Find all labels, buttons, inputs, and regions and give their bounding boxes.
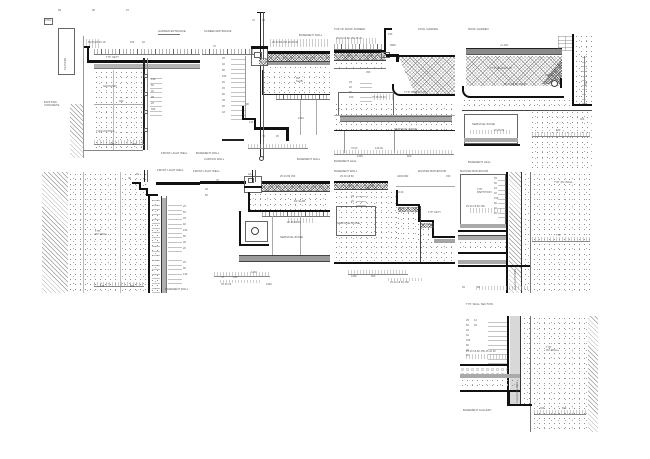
- annotation-label: TYP. SETT: [428, 211, 441, 214]
- annotation-label: 25 40 80 150: [280, 175, 295, 178]
- annotation-label: SERVICE ZONE: [472, 123, 495, 127]
- annotation-label: ROOF GARDEN: [468, 28, 489, 31]
- annotation-label: 45: [474, 324, 477, 327]
- step-membrane-line: [396, 204, 420, 206]
- coping-line: [466, 54, 562, 55]
- annotation-label: 150: [151, 78, 155, 81]
- annotation-label: 45: [276, 135, 279, 138]
- annotation-label: BASEMENT WALL: [297, 158, 320, 161]
- annotation-label: PLANTER: [64, 58, 67, 70]
- annotation-label: 18: [222, 111, 225, 114]
- annotation-label: 50: [183, 211, 186, 214]
- dimension-line: [534, 414, 586, 415]
- annotation-label: 600: [371, 275, 375, 278]
- ceiling-band: [239, 256, 330, 261]
- annotation-label: 80: [151, 84, 154, 87]
- annotation-label: 120: [183, 273, 187, 276]
- leader-riser: [245, 56, 246, 120]
- mullion-line: [255, 170, 256, 182]
- annotation-label: 80: [494, 202, 497, 205]
- pipe-flag: [386, 28, 392, 30]
- annotation-label: 40: [151, 90, 154, 93]
- receiver-head: [251, 46, 268, 49]
- membrane-upstand: [560, 78, 562, 88]
- annotation-label: GROUND: [103, 85, 117, 89]
- annotation-label: +0.00: [397, 191, 404, 194]
- annotation-label: FRONT LIGHT WELL: [157, 169, 184, 172]
- annotation-label: 600: [556, 129, 560, 132]
- annotation-label: 18: [466, 329, 469, 332]
- concrete-slab-hatch: [334, 240, 455, 262]
- dimension-line: [94, 54, 200, 55]
- annotation-label: 40: [183, 223, 186, 226]
- ceiling-line: [458, 265, 530, 267]
- annotation-label: EXISTING CONCRETE: [44, 101, 59, 107]
- earth-hatch: [588, 316, 598, 432]
- annotation-label: 50 80 25 40 18: [88, 41, 105, 44]
- membrane-curve: [462, 86, 564, 98]
- concrete-slab-hatch: [462, 98, 572, 110]
- wall-line: [530, 316, 531, 432]
- annotation-label: 25: [151, 96, 154, 99]
- annotation-label: 70 45 20 40: [372, 96, 386, 99]
- partition-line: [316, 100, 317, 135]
- annotation-label: 70: [213, 45, 216, 48]
- wall-line: [520, 316, 521, 406]
- floor-slab-hatch: [458, 240, 506, 252]
- lining-line: [166, 196, 167, 293]
- annotation-label: 25: [183, 205, 186, 208]
- annotation-label: POOL GARDEN: [418, 28, 438, 31]
- annotation-label: TYP. SETT: [106, 56, 119, 59]
- annotation-label: 1200: [351, 275, 357, 278]
- annotation-label: TYP. RC WALL: [546, 346, 558, 352]
- annotation-label: 240: [233, 276, 237, 279]
- soffit-line: [276, 99, 330, 100]
- annotation-label: 12: [474, 319, 477, 322]
- annotation-label: 260: [132, 143, 136, 146]
- slab-soffit-line: [334, 262, 455, 264]
- fixing-plate: [144, 92, 148, 96]
- dimension-line: [202, 54, 254, 55]
- annotation-label: RWP: [390, 44, 396, 47]
- annotation-label: 90: [477, 286, 480, 289]
- annotation-label: 18: [183, 217, 186, 220]
- annotation-label: 20: [494, 212, 497, 215]
- annotation-label: BASEMENT WALL: [196, 152, 219, 155]
- annotation-label: 25: [222, 57, 225, 60]
- leader-lines: [168, 260, 182, 284]
- annotation-label: 40: [349, 86, 352, 89]
- annotation-label: BASEMENT GALLERY: [463, 409, 492, 412]
- annotation-label: 1200: [251, 271, 257, 274]
- annotation-label: 600: [562, 407, 566, 410]
- hanger-line: [272, 216, 273, 256]
- annotation-label: AA: [248, 173, 251, 176]
- wall-line: [521, 172, 522, 293]
- wall-line: [143, 58, 145, 150]
- annotation-label: 20: [151, 102, 154, 105]
- fixing-plate: [144, 74, 148, 78]
- annotation-label: 25: [466, 319, 469, 322]
- title-underline: [158, 34, 180, 35]
- concrete-joint-line: [83, 172, 84, 293]
- concrete-mass-hatch: [532, 172, 592, 293]
- ceiling-band: [464, 138, 518, 142]
- dimension-ticks: [476, 286, 530, 290]
- annotation-label: 150: [446, 175, 450, 178]
- annotation-label: CURTAIN WALL: [204, 158, 224, 161]
- tread-hatch: [398, 207, 418, 212]
- beam-line: [340, 121, 452, 122]
- annotation-label: 25 40 80 150 20 45 90: [272, 41, 298, 44]
- annotation-label: 150: [349, 96, 353, 99]
- rainwater-pipe-line: [384, 28, 386, 54]
- annotation-label: 20: [351, 200, 354, 203]
- concrete-joint-line: [113, 70, 114, 150]
- ground-line: [396, 186, 455, 187]
- annotation-label: 90: [246, 103, 249, 106]
- annotation-label: RC SLAB: [294, 200, 305, 203]
- annotation-label: +2.150: [500, 44, 508, 47]
- annotation-label: 300: [580, 118, 584, 121]
- annotation-label: 70: [216, 179, 219, 182]
- concrete-joint-line: [94, 104, 143, 105]
- insulation-hatch: [262, 184, 330, 191]
- annotation-label: 45: [462, 286, 465, 289]
- annotation-label: 05: [58, 9, 61, 12]
- slab-edge-line: [248, 192, 250, 211]
- annotation-label: 06: [92, 9, 95, 12]
- annotation-label: 140: [249, 121, 253, 124]
- annotation-label: TILE PAVING: [96, 130, 115, 134]
- annotation-label: 70: [128, 177, 131, 180]
- annotation-label: CLEAR OPENING: [514, 269, 517, 290]
- wall-layer-lines: [152, 198, 160, 293]
- mullion-line: [144, 170, 145, 182]
- mullion-line: [147, 170, 148, 182]
- annotation-label: 2400: [266, 283, 272, 286]
- annotation-label: TYP. PARTITION: [477, 188, 492, 194]
- annotation-label: MASTER BATHROOM: [460, 170, 488, 173]
- annotation-label: TYP. BUILD-UP: [490, 67, 512, 71]
- annotation-label: 80: [349, 91, 352, 94]
- annotation-label: TYP. RC WALL: [95, 230, 107, 236]
- ceiling-line: [239, 261, 330, 262]
- annotation-label: BASEMENT WALL: [334, 170, 357, 173]
- floor-membrane-line: [460, 364, 508, 366]
- annotation-label: 70: [252, 19, 255, 22]
- annotation-label: 18: [494, 187, 497, 190]
- concrete-slab-hatch: [248, 192, 330, 211]
- annotation-label: 20: [222, 81, 225, 84]
- section-marker: [259, 156, 264, 161]
- annotation-label: 70: [221, 276, 224, 279]
- annotation-label: BASEMENT HALL: [468, 161, 491, 164]
- annotation-label: 40: [466, 334, 469, 337]
- wall-face-line: [572, 34, 574, 106]
- annotation-label: 185: [100, 285, 104, 288]
- annotation-label: BASEMENT WALL: [165, 288, 188, 291]
- step-line: [508, 404, 532, 406]
- annotation-label: 150: [365, 187, 369, 190]
- dimension-line: [248, 148, 308, 149]
- annotation-label: 30: [183, 241, 186, 244]
- wall-core-hatch: [522, 316, 530, 406]
- band-line: [334, 68, 386, 69]
- annotation-label: 150: [222, 75, 226, 78]
- dimension-line: [348, 274, 408, 275]
- screed-hatch: [334, 61, 386, 68]
- annotation-label: MASTER BATHROOM: [418, 170, 446, 173]
- annotation-label: 300: [540, 407, 544, 410]
- annotation-label: TOP OF ROOF SCREED: [334, 28, 365, 31]
- light-fitting: [251, 227, 259, 235]
- bulkhead-line: [239, 244, 269, 246]
- annotation-label: 45: [351, 195, 354, 198]
- fixing-plate: [144, 110, 148, 114]
- wall-boundary-line: [83, 36, 84, 158]
- annotation-label: 80: [183, 235, 186, 238]
- earth-hatch: [70, 104, 83, 158]
- annotation-label: 40: [222, 63, 225, 66]
- annotation-label: 60: [222, 105, 225, 108]
- annotation-label: 450: [585, 82, 588, 86]
- annotation-label: 45: [136, 173, 139, 176]
- dimension-line: [334, 154, 454, 155]
- ceiling-line: [464, 144, 520, 146]
- mullion-line: [252, 170, 253, 182]
- annotation-label: 25 40 18 80 150: [466, 205, 485, 208]
- annotation-label: 25 40 18 80 150 45 20: [336, 37, 362, 40]
- annotation-label: 25 40 18 80 150 45 20 90: [466, 350, 496, 353]
- annotation-label: 45: [183, 261, 186, 264]
- annotation-label: 90: [183, 267, 186, 270]
- annotation-label: BASEMENT HALL: [334, 160, 357, 163]
- floor-band: [460, 224, 506, 228]
- annotation-label: SERVICE ZONE: [394, 128, 417, 132]
- wall-core-hatch: [523, 172, 530, 293]
- annotation-label: 07: [126, 9, 129, 12]
- concrete-joint-line: [120, 172, 121, 293]
- annotation-label: 150: [494, 197, 498, 200]
- annotation-label: 600: [407, 155, 411, 158]
- mass-top-line: [530, 110, 592, 111]
- annotation-label: 25 40 18: [221, 283, 231, 286]
- annotation-label: 2120: [298, 117, 304, 120]
- annotation-label: 70: [262, 135, 265, 138]
- slab-soffit-line: [460, 390, 520, 392]
- annotation-label: 140.00: [375, 147, 383, 150]
- annotation-label: 70.00: [351, 147, 358, 150]
- annotation-label: 185: [110, 143, 114, 146]
- annotation-label: 25: [205, 188, 208, 191]
- annotation-label: 450: [366, 71, 370, 74]
- drainage-gravel-hatch: [460, 367, 508, 374]
- annotation-label: 25 40 18 80 150: [390, 281, 409, 284]
- annotation-label: FRONT LIGHT WELL: [161, 152, 188, 155]
- annotation-label: SERVICE ZONE: [280, 236, 303, 240]
- annotation-label: 25 40 18 80: [340, 175, 354, 178]
- annotation-label: CTRL: [45, 20, 51, 23]
- annotation-label: 150: [466, 339, 470, 342]
- leader-lines: [470, 208, 502, 213]
- membrane-line: [398, 55, 455, 57]
- wall-face-line: [506, 172, 508, 293]
- tread-hatch: [420, 223, 434, 228]
- annotation-label: 45: [222, 87, 225, 90]
- slab-soffit-line: [458, 252, 506, 254]
- annotation-label: 80: [466, 344, 469, 347]
- leader-lines: [356, 194, 366, 206]
- annotation-label: 1200: [357, 155, 363, 158]
- annotation-label: 25: [494, 177, 497, 180]
- concrete-slab-hatch: [94, 70, 143, 150]
- annotation-label: 300: [119, 100, 123, 103]
- wall-step-line: [572, 104, 592, 106]
- dimension-line: [532, 241, 590, 242]
- annotation-label: 25 40 18 80 150 45: [504, 83, 526, 86]
- annotation-label: RC SLAB: [296, 77, 303, 83]
- insulation-hatch: [259, 58, 268, 66]
- ledge-line: [222, 139, 244, 141]
- annotation-label: 50: [466, 324, 469, 327]
- junction-line: [244, 186, 262, 188]
- annotation-label: 35: [222, 99, 225, 102]
- roof-edge-upstand: [87, 47, 89, 61]
- annotation-label: SCREEN ENTRANCE: [204, 30, 231, 33]
- floor-line: [458, 230, 508, 232]
- annotation-label: SERVICE ZONE: [337, 222, 360, 226]
- annotation-label: GARDEN ENTRANCE: [158, 30, 186, 33]
- bulkhead-line: [239, 211, 241, 246]
- concrete-wall-hatch: [68, 172, 148, 293]
- masonry-hatch: [558, 36, 572, 51]
- dimension-line: [532, 136, 590, 137]
- fixing-plate: [144, 128, 148, 132]
- annotation-label: 40: [494, 192, 497, 195]
- annotation-label: 40: [142, 41, 145, 44]
- wall-line: [147, 58, 148, 150]
- annotation-label: CLEAR OPENING: [516, 382, 519, 403]
- coping-membrane-line: [200, 181, 246, 184]
- annotation-label: BASEMENT WALL: [299, 34, 322, 37]
- annotation-label: 260: [130, 285, 134, 288]
- earth-hatch: [42, 172, 68, 293]
- leader-lines: [466, 354, 508, 359]
- annotation-label: 25: [349, 81, 352, 84]
- annotation-label: TYP: [556, 234, 561, 237]
- dimension-line: [584, 56, 585, 104]
- annotation-label: 20 45 90 35: [287, 221, 301, 224]
- drawing-sheet: 050607CTRLPLANTERGARDEN ENTRANCE50 80 25…: [0, 0, 650, 459]
- insulation-hatch: [334, 53, 386, 60]
- wall-line: [530, 172, 531, 293]
- floor-slab-hatch: [460, 378, 520, 390]
- step-membrane-line: [432, 236, 455, 238]
- annotation-label: 20: [183, 247, 186, 250]
- annotation-label: 50: [205, 194, 208, 197]
- annotation-label: TYP. BUILD-UP: [404, 91, 426, 95]
- annotation-label: 80: [222, 69, 225, 72]
- annotation-label: 20: [466, 354, 469, 357]
- base-line: [83, 150, 143, 151]
- annotation-label: 50: [494, 182, 497, 185]
- annotation-label: 150: [388, 33, 392, 36]
- annotation-label: 100Ø: [545, 74, 551, 77]
- leader-lines: [168, 204, 182, 252]
- annotation-label: 300: [151, 108, 155, 111]
- annotation-label: 45: [262, 19, 265, 22]
- annotation-label: 150: [130, 41, 134, 44]
- annotation-label: GROUND: [397, 175, 408, 178]
- annotation-label: 30: [494, 207, 497, 210]
- coping-membrane-line: [156, 182, 200, 185]
- insulation-hatch: [268, 54, 330, 61]
- annotation-label: 90: [222, 93, 225, 96]
- annotation-label: TYP. WALL SECTION: [466, 303, 493, 306]
- soffit-membrane-line: [286, 127, 289, 141]
- annotation-label: 150: [183, 229, 187, 232]
- annotation-label: TYP. RC WALL: [554, 181, 573, 184]
- dimension-line: [94, 144, 144, 145]
- ceiling-band: [458, 260, 506, 264]
- annotation-label: FRONT LIGHT WELL: [193, 170, 220, 173]
- annotation-label: 20 45 90: [494, 129, 504, 132]
